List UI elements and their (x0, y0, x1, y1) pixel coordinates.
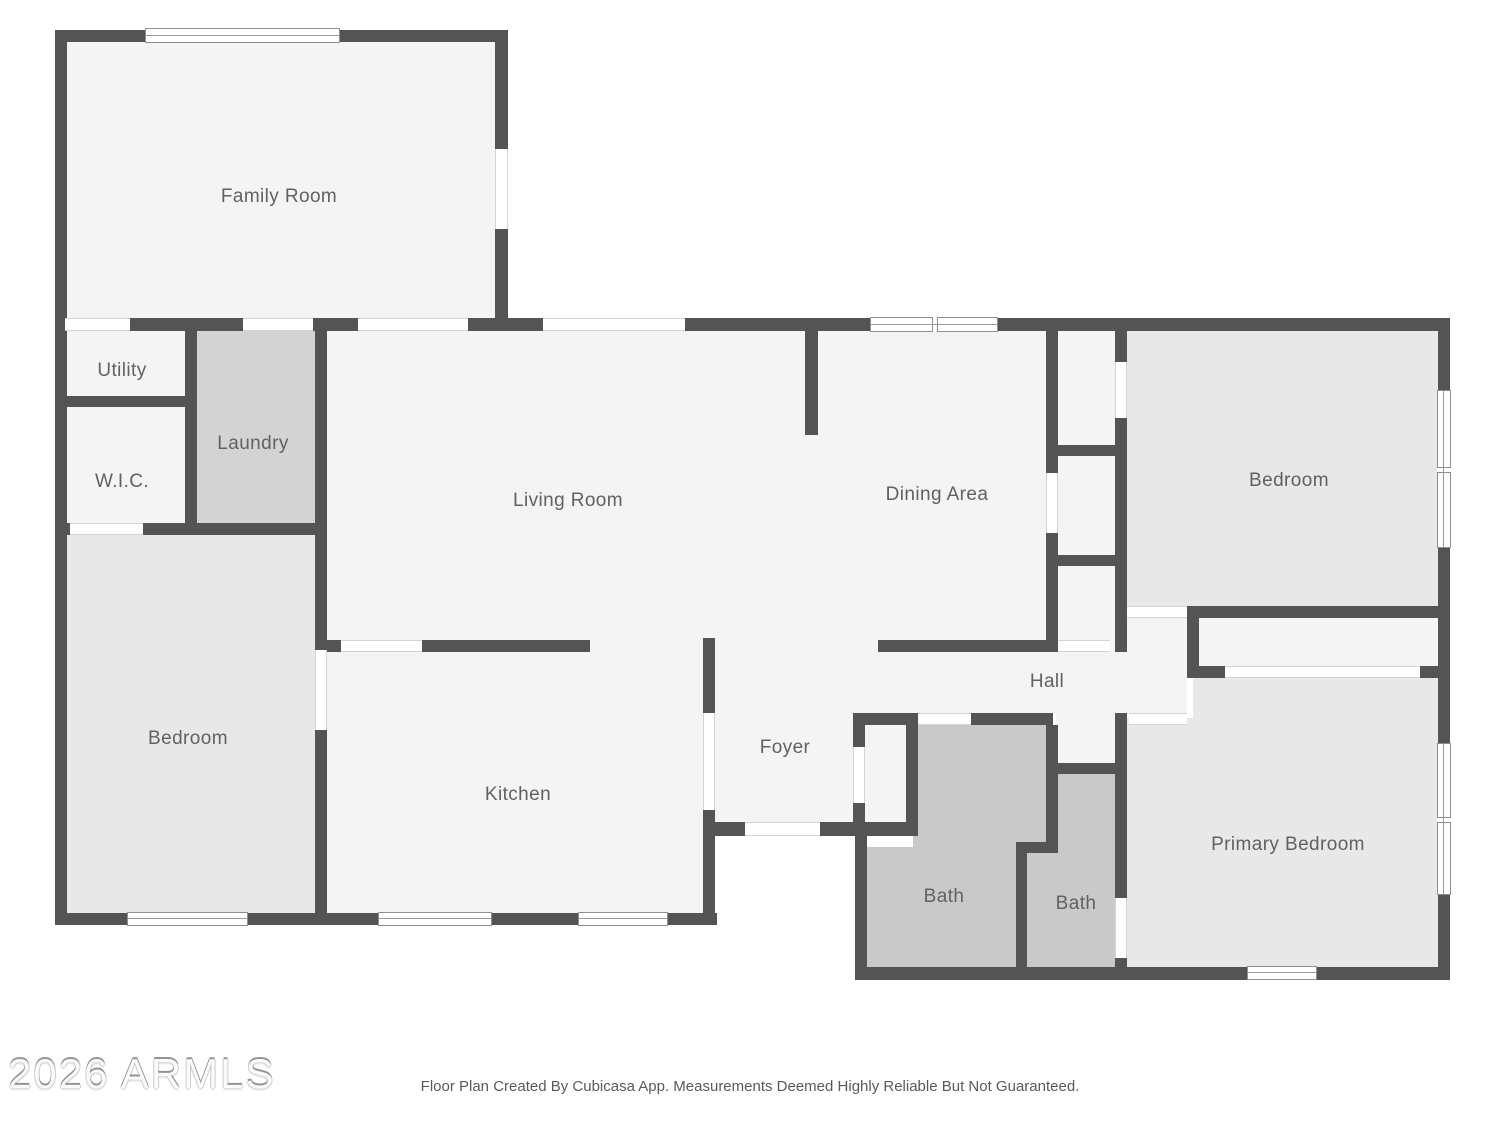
room-fill-closet-1 (1056, 331, 1121, 451)
wall (1187, 606, 1444, 618)
patio-door-opening (543, 318, 685, 331)
door-opening (358, 318, 468, 331)
window (145, 28, 340, 43)
room-fill-laundry (197, 330, 315, 529)
window (127, 912, 248, 926)
closet-opening (1115, 362, 1127, 418)
window (870, 317, 998, 332)
wall (805, 331, 818, 435)
closet-door-opening (853, 747, 865, 803)
wall (906, 713, 918, 833)
door-opening (315, 650, 327, 730)
room-fill-closet-3 (1056, 561, 1121, 646)
wall (855, 836, 867, 976)
window (1437, 743, 1451, 895)
door-opening (1115, 898, 1127, 958)
room-label-dining-area: Dining Area (886, 484, 989, 506)
room-label-bath-1: Bath (924, 886, 965, 908)
closet-opening (1058, 640, 1110, 652)
room-label-bath-2: Bath (1056, 893, 1097, 915)
sliding-door-opening (495, 149, 508, 229)
wall (855, 967, 1450, 980)
room-fill-bath-1-upper (913, 723, 1052, 849)
room-label-foyer: Foyer (760, 737, 811, 759)
wall (315, 324, 327, 925)
door-opening (1046, 473, 1058, 533)
wall (1187, 606, 1199, 678)
wall (1046, 763, 1122, 774)
wall (1199, 666, 1225, 678)
wall (55, 30, 67, 925)
room-fill-entry-closet (863, 723, 908, 828)
room-fill-kitchen (327, 646, 715, 919)
door-opening (1127, 606, 1187, 618)
floor-plan: Family Room Utility Laundry W.I.C. Livin… (0, 0, 1500, 1125)
room-fill-foyer (715, 646, 853, 822)
room-label-primary-bedroom: Primary Bedroom (1211, 834, 1365, 856)
wall (422, 640, 590, 652)
door-opening (1129, 713, 1187, 725)
door-opening (703, 713, 715, 810)
room-fill-family-room (61, 36, 503, 324)
room-label-wic: W.I.C. (95, 471, 149, 493)
wall (1016, 853, 1027, 971)
door-opening (243, 318, 313, 331)
room-label-bedroom-ne: Bedroom (1249, 470, 1329, 492)
room-fill-wic (67, 402, 185, 529)
wall (1016, 842, 1058, 853)
entry-opening (745, 822, 820, 836)
door-opening (65, 318, 130, 331)
wall (61, 396, 191, 407)
door-opening (918, 713, 971, 725)
room-label-hall: Hall (1030, 671, 1064, 693)
window (1437, 390, 1451, 548)
room-label-family-room: Family Room (221, 186, 337, 208)
wall (1046, 725, 1058, 852)
room-label-kitchen: Kitchen (485, 784, 551, 806)
window (1247, 966, 1317, 980)
disclaimer-text: Floor Plan Created By Cubicasa App. Meas… (0, 1078, 1500, 1095)
room-fill-primary-entry (1193, 674, 1444, 721)
room-fill-bath-2-upper (1052, 770, 1120, 852)
door-opening (341, 640, 422, 652)
room-label-utility: Utility (97, 360, 146, 382)
wall (185, 324, 197, 529)
room-fill-primary-closet (1199, 618, 1444, 670)
room-fill-linen-closet (1056, 713, 1122, 768)
room-label-living-room: Living Room (513, 490, 623, 512)
room-fill-bedroom-sw (67, 535, 315, 919)
sliding-closet-opening (1225, 666, 1420, 678)
room-fill-hall-corridor (853, 646, 1187, 713)
wall (878, 640, 1056, 652)
window (578, 912, 668, 926)
window (378, 912, 492, 926)
room-fill-closet-2 (1056, 451, 1121, 561)
room-label-bedroom-sw: Bedroom (148, 728, 228, 750)
room-label-laundry: Laundry (217, 433, 288, 455)
room-fill-bath-1-lower (863, 847, 1020, 970)
door-opening (70, 523, 143, 535)
